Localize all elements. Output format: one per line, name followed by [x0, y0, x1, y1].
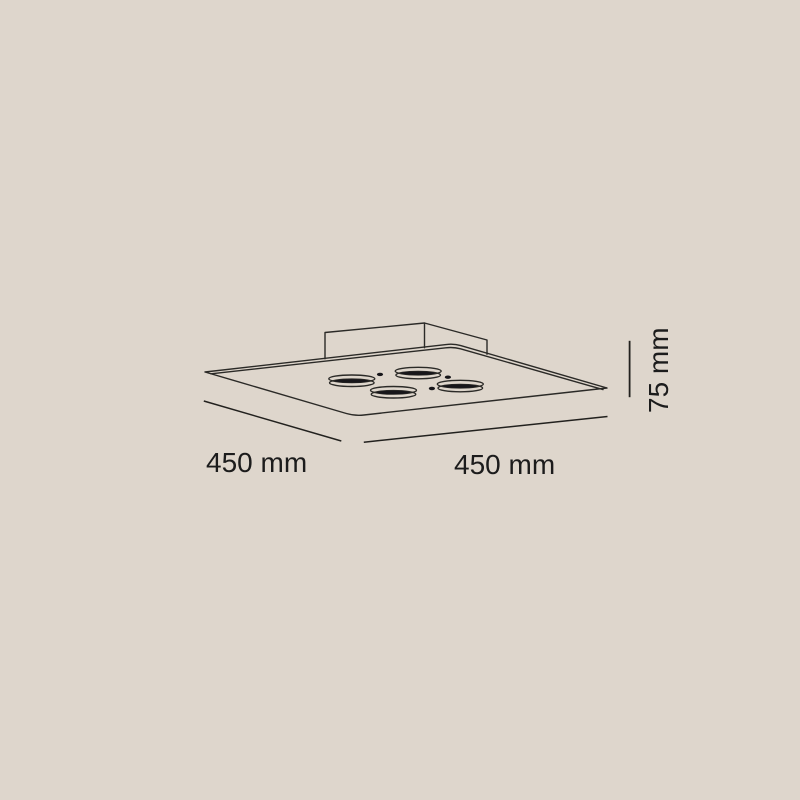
svg-text:450 mm: 450 mm — [206, 447, 307, 478]
svg-text:450 mm: 450 mm — [454, 449, 555, 480]
svg-text:75 mm: 75 mm — [643, 327, 674, 413]
